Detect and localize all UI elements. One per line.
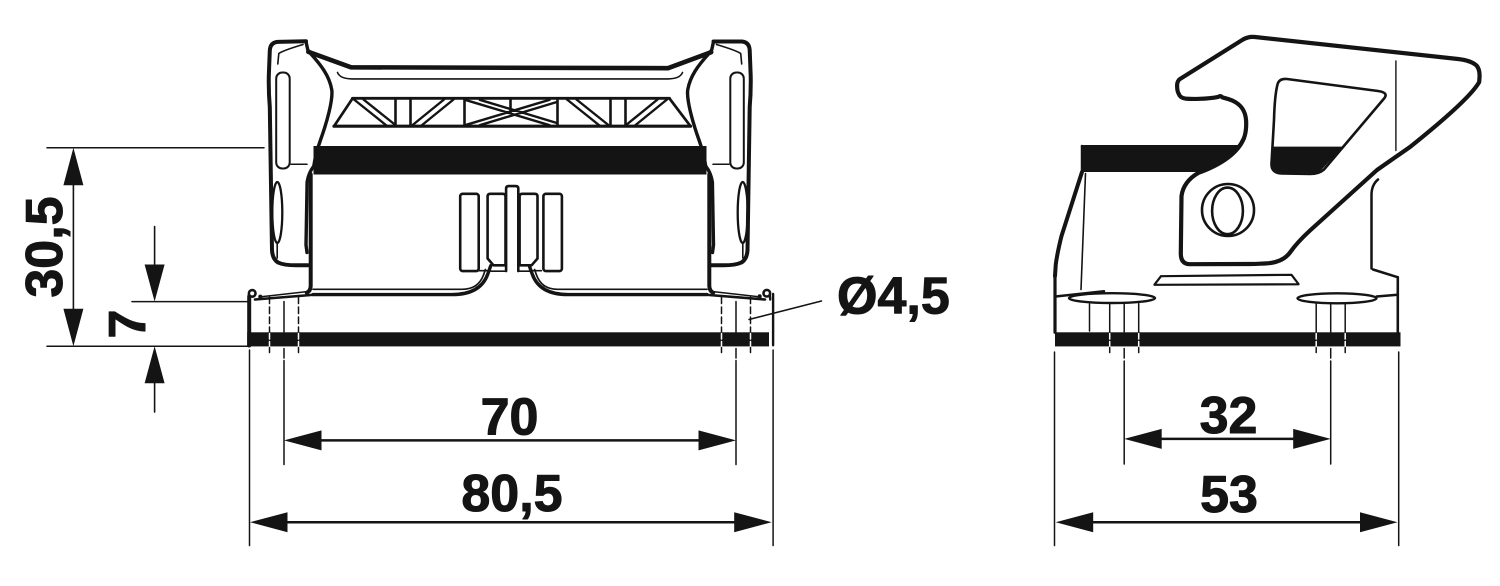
svg-text:53: 53 xyxy=(1200,466,1258,524)
svg-text:7: 7 xyxy=(99,310,157,339)
svg-text:32: 32 xyxy=(1200,387,1258,445)
svg-text:30,5: 30,5 xyxy=(16,196,74,297)
svg-text:70: 70 xyxy=(481,389,539,447)
svg-text:Ø4,5: Ø4,5 xyxy=(837,268,950,326)
svg-text:80,5: 80,5 xyxy=(461,465,562,523)
